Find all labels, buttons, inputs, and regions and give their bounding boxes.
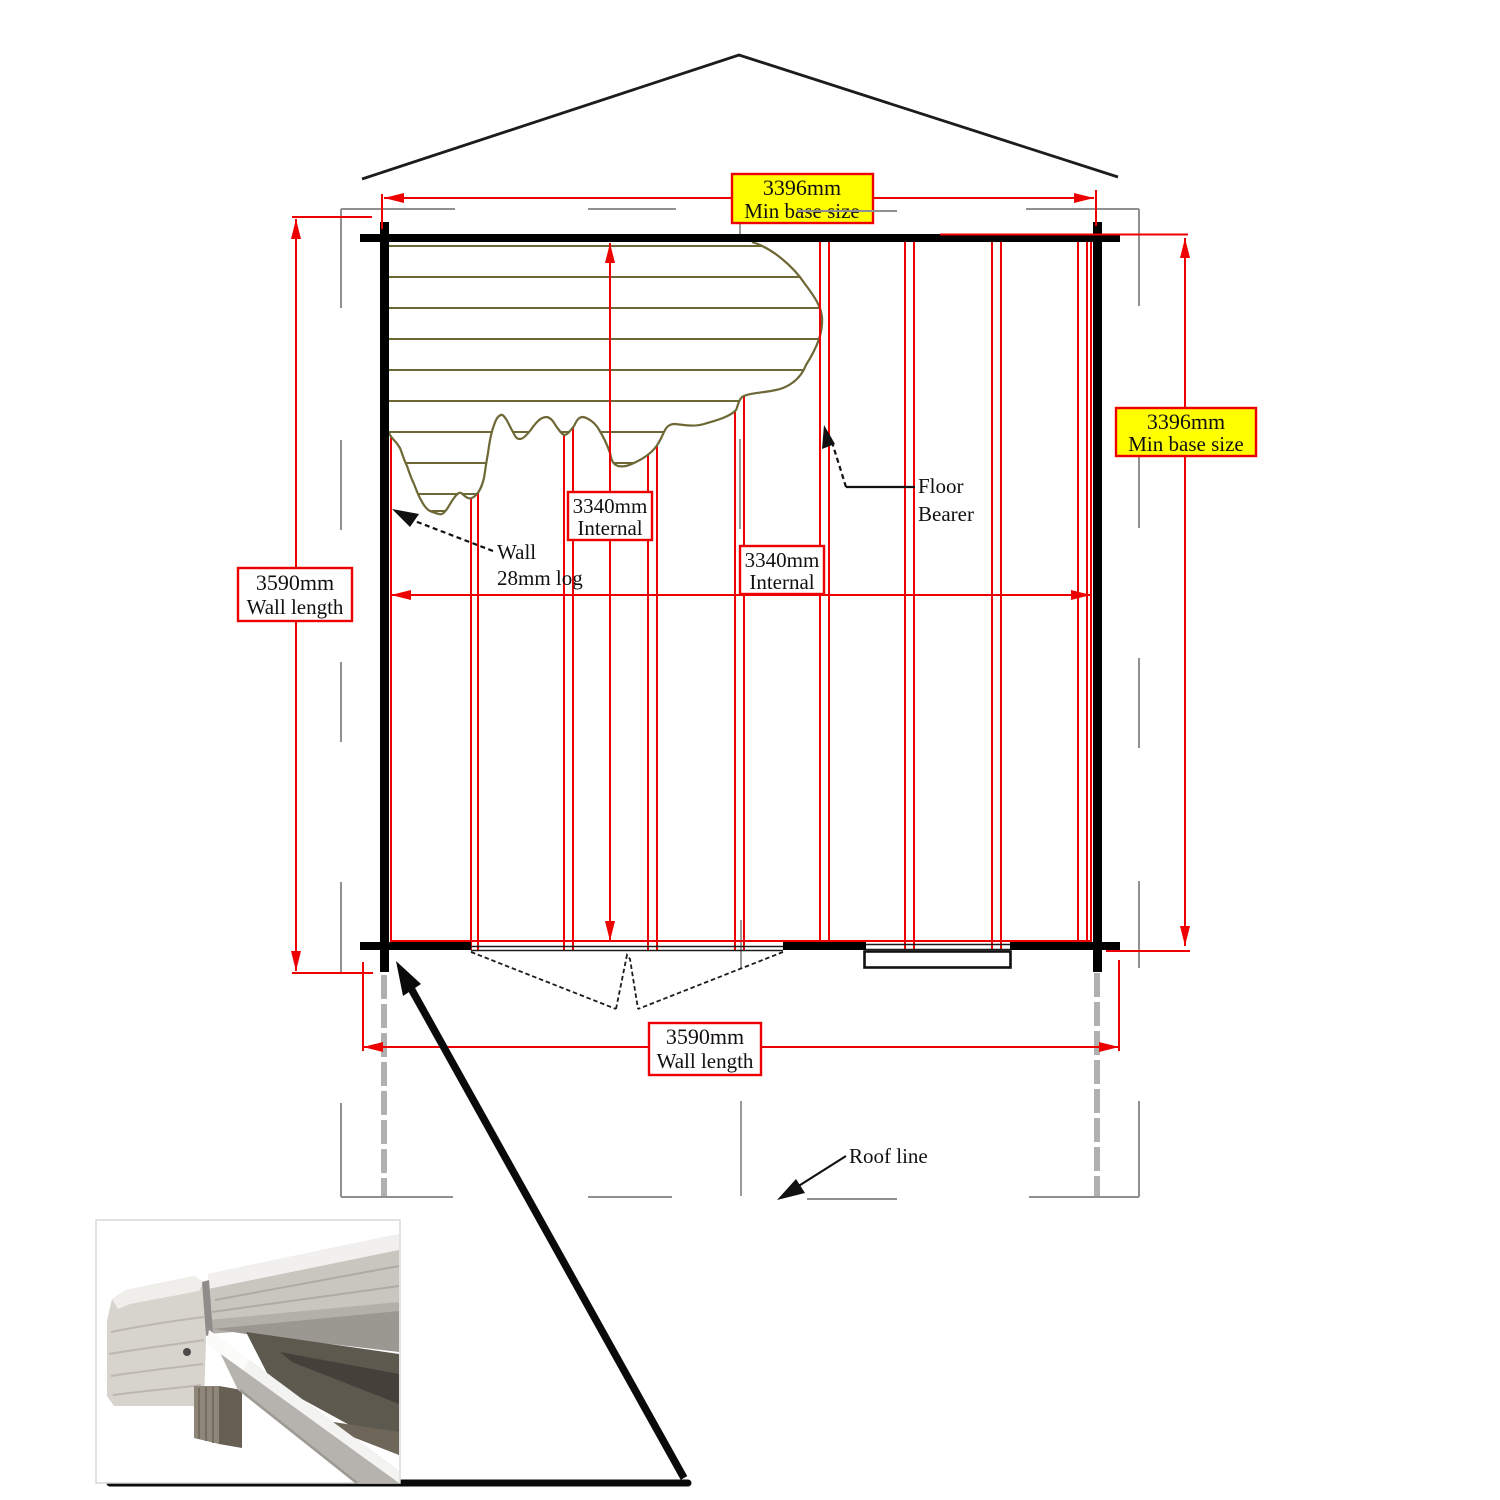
svg-text:28mm log: 28mm log — [497, 566, 583, 590]
svg-text:3590mm: 3590mm — [256, 570, 334, 595]
svg-text:Internal: Internal — [577, 516, 642, 540]
svg-text:Min base size: Min base size — [1128, 432, 1243, 456]
svg-text:Bearer: Bearer — [918, 502, 974, 526]
svg-text:Wall: Wall — [497, 540, 536, 564]
svg-text:Roof line: Roof line — [849, 1144, 928, 1168]
svg-text:Wall length: Wall length — [657, 1049, 754, 1073]
svg-text:3590mm: 3590mm — [666, 1024, 744, 1049]
svg-text:3340mm: 3340mm — [745, 548, 820, 572]
svg-text:3340mm: 3340mm — [573, 494, 648, 518]
svg-text:Wall length: Wall length — [247, 595, 344, 619]
svg-text:Internal: Internal — [749, 570, 814, 594]
svg-text:3396mm: 3396mm — [763, 175, 841, 200]
svg-text:Floor: Floor — [918, 474, 964, 498]
svg-text:3396mm: 3396mm — [1147, 409, 1225, 434]
